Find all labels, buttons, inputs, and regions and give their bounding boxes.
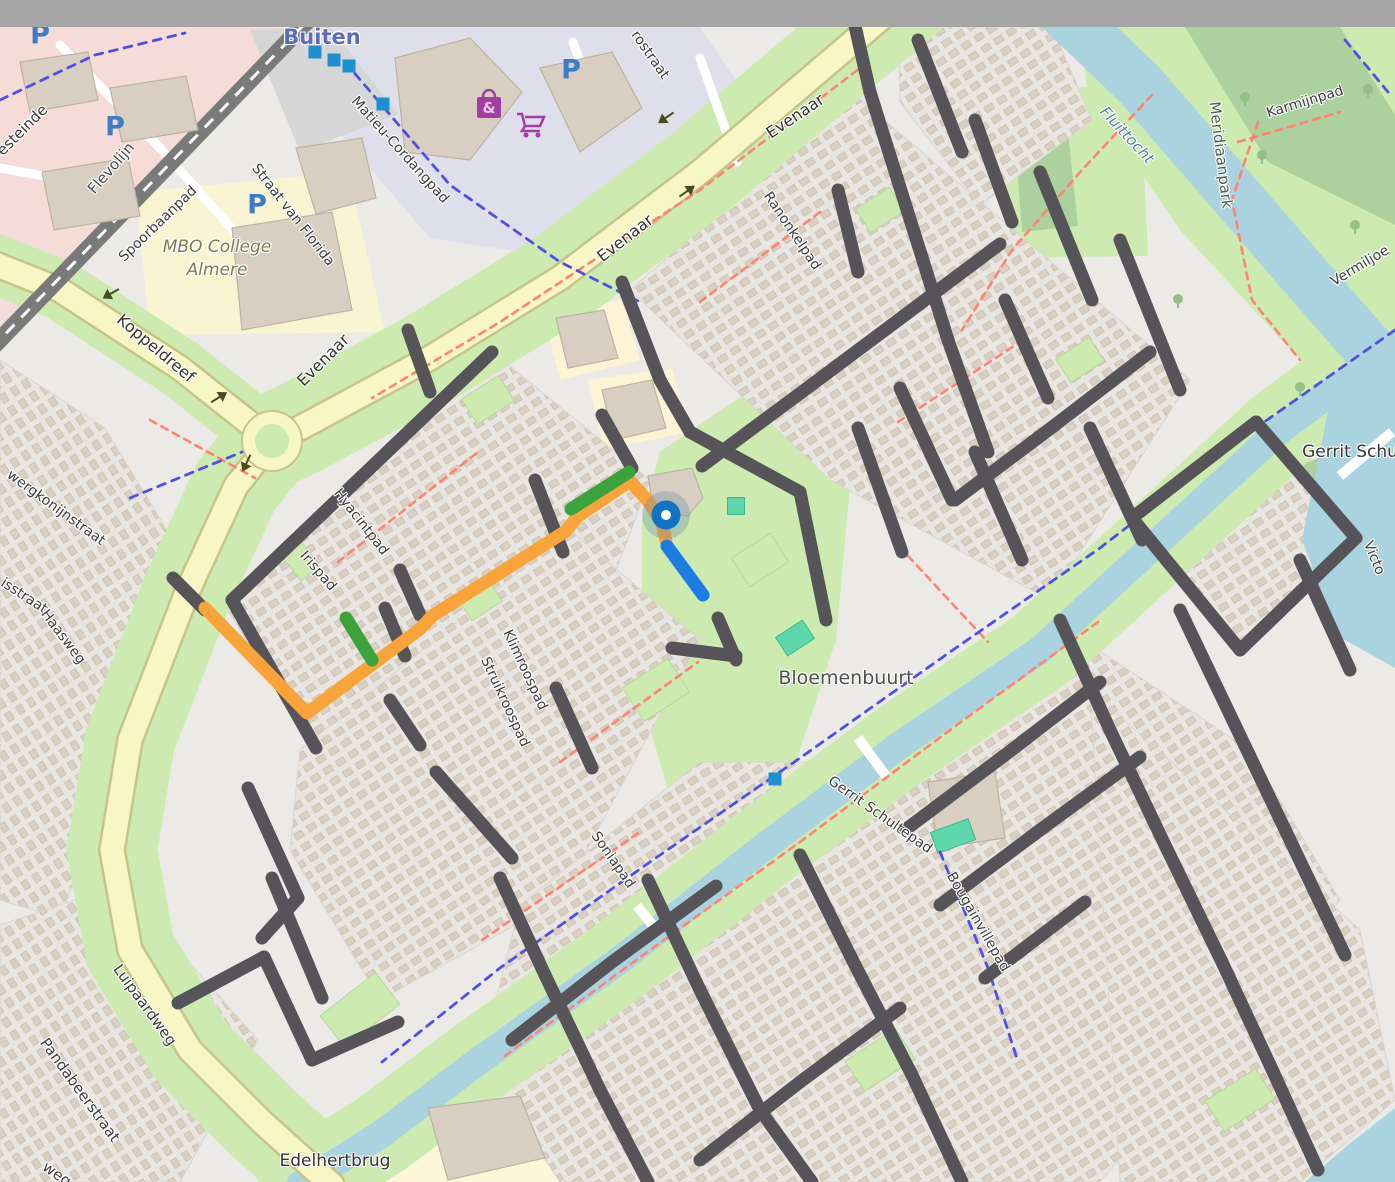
map-render-layer: & bbox=[0, 0, 1395, 1182]
pitch-patch bbox=[728, 498, 745, 515]
svg-text:&: & bbox=[482, 99, 495, 117]
window-chrome-bar bbox=[0, 0, 1395, 27]
position-marker[interactable] bbox=[642, 491, 690, 539]
building bbox=[232, 212, 352, 330]
roundabout-island bbox=[255, 424, 289, 458]
marker-core bbox=[661, 510, 671, 520]
building bbox=[110, 76, 198, 142]
map-canvas[interactable]: & BuitenesteindeFlevolijnSpoorbaanpadMat… bbox=[0, 0, 1395, 1182]
